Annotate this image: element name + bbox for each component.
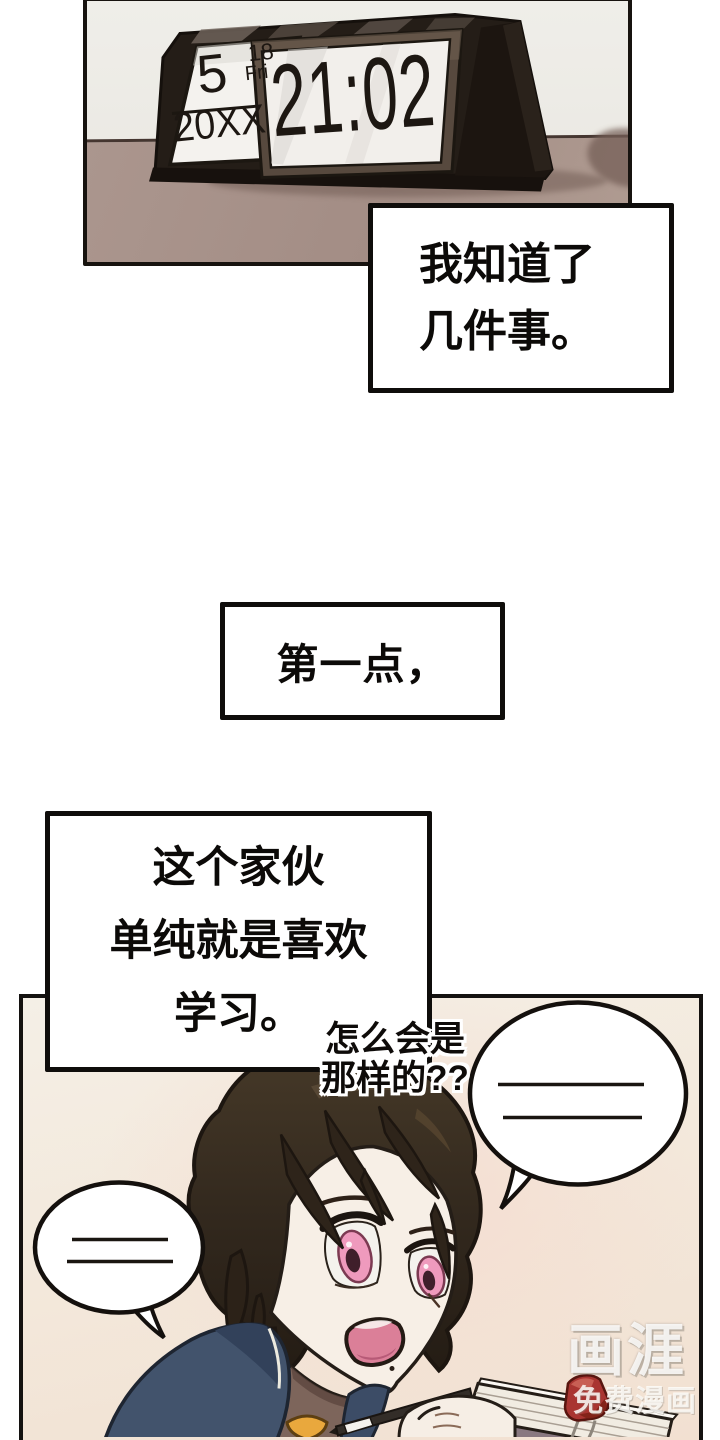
speech-bubble-mid-left: [35, 1183, 203, 1338]
caption-line: 这个家伙: [153, 832, 325, 905]
clock-date-day: 5: [194, 42, 230, 107]
clock-year: 20XX: [171, 95, 268, 151]
shout-text: 怎么会是 那样的??: [303, 1020, 487, 1098]
watermark-logo: 画涯: [567, 1305, 687, 1387]
caption-box-2: 第一点，: [220, 602, 505, 720]
caption-line: 我知道了: [419, 231, 595, 298]
caption-line: 单纯就是喜欢: [110, 905, 368, 978]
caption-box-1: 我知道了 几件事。: [368, 203, 674, 393]
shout-line: 怎么会是: [303, 1020, 487, 1059]
clock-weekday: Fri: [244, 61, 270, 86]
clock-time: 21:02: [267, 32, 439, 161]
shout-line: 那样的??: [303, 1059, 487, 1098]
comic-page: 5 18 Fri 20XX 21:02 我知道了 几件事。 第一点， 这个家伙 …: [0, 0, 720, 1440]
speech-bubble-top-right: [470, 1003, 686, 1209]
watermark-tagline: 免费漫画: [573, 1376, 697, 1420]
caption-line: 几件事。: [419, 298, 595, 365]
caption-line: 学习。: [174, 978, 303, 1051]
caption-line: 第一点，: [276, 631, 448, 692]
character-tie: [287, 1416, 327, 1437]
